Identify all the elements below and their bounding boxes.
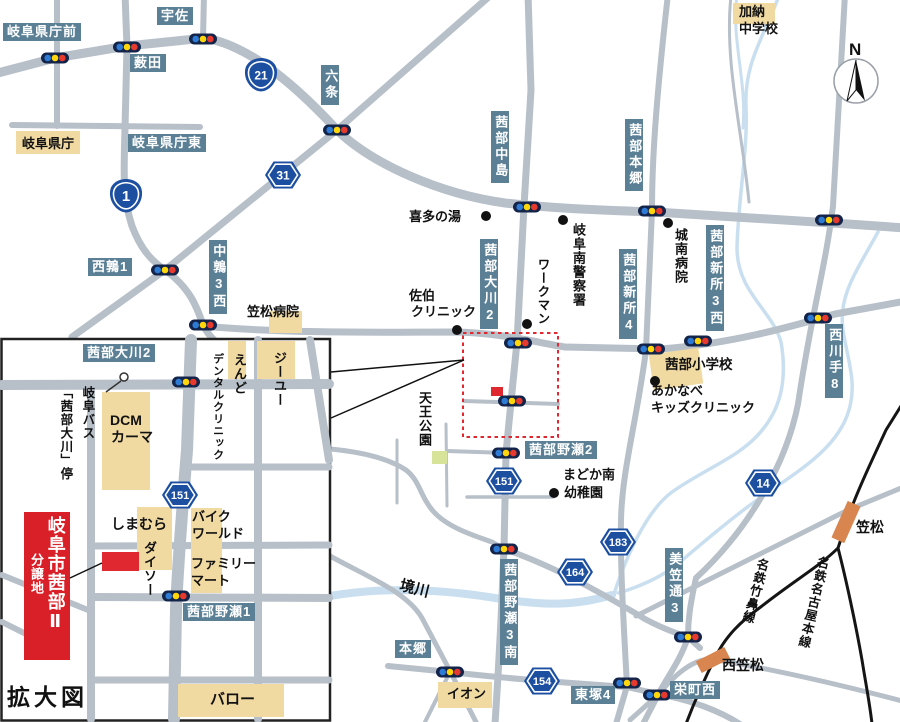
label-kencho-mae: 岐阜県庁前 <box>3 23 81 41</box>
svg-text:31: 31 <box>276 169 290 183</box>
inset-label-okawa2: 茜部大川2 <box>83 344 155 362</box>
traffic-light-icon <box>490 544 518 555</box>
traffic-light-icon <box>41 53 69 64</box>
label-kasamatsu-station: 笠松 <box>856 519 884 535</box>
traffic-light-icon <box>504 338 532 349</box>
inset-label-dcm-line2: カーマ <box>111 429 153 445</box>
inset-label-bus-col2: 「茜部大川」停 <box>58 386 72 481</box>
label-shogakko: 茜部小学校 <box>665 357 733 373</box>
site-parcel-inset <box>102 552 139 571</box>
inset-label-gu: ジーユー <box>271 351 286 407</box>
inset-road <box>91 597 329 598</box>
traffic-light-icon <box>323 125 351 136</box>
route-shield-151: 151 <box>486 468 522 495</box>
callout-line <box>331 360 464 372</box>
label-kencho-higashi: 岐阜県庁東 <box>128 134 206 152</box>
label-madoka-line2: 幼稚園 <box>564 486 603 501</box>
svg-text:14: 14 <box>756 477 770 491</box>
traffic-light-icon <box>189 34 217 45</box>
traffic-light-icon <box>643 690 671 701</box>
road <box>12 125 200 127</box>
route-shield-164: 164 <box>557 559 593 586</box>
label-naka-uzura3: 中鶉3西 <box>209 240 227 314</box>
label-shinsho4: 茜部新所4 <box>619 249 637 339</box>
traffic-light-icon <box>436 667 464 678</box>
compass-icon <box>834 59 878 103</box>
svg-text:183: 183 <box>609 537 627 549</box>
traffic-light-icon <box>674 632 702 643</box>
label-kencho: 岐阜県庁 <box>16 131 80 154</box>
label-noze3-minami: 茜部野瀬3南 <box>500 559 518 665</box>
label-nishi-kasamatsu-station: 西笠松 <box>722 657 764 673</box>
label-yabuta: 薮田 <box>130 54 166 72</box>
traffic-light-icon <box>113 42 141 53</box>
inset-label-noze1: 茜部野瀬1 <box>183 603 255 621</box>
label-jonan: 城南病院 <box>672 228 687 284</box>
inset-label-endo: えんど <box>231 353 246 395</box>
svg-text:151: 151 <box>495 476 513 488</box>
inset-label-dcm-line1: DCM <box>110 412 142 428</box>
label-saeki-line2: クリニック <box>411 305 476 320</box>
svg-text:154: 154 <box>533 676 552 688</box>
label-shinsho3-nishi: 茜部新所3西 <box>706 225 724 331</box>
label-kano-line2: 中学校 <box>739 22 778 37</box>
label-akabe-hongo: 茜部本郷 <box>625 119 643 191</box>
svg-text:1: 1 <box>122 188 130 205</box>
label-kano-line1: 加納 <box>739 5 765 20</box>
callout-line <box>331 360 464 418</box>
road <box>203 0 204 39</box>
label-usa: 宇佐 <box>157 7 193 25</box>
traffic-light-icon <box>638 206 666 217</box>
label-saeki-line1: 佐伯 <box>409 289 435 304</box>
inset-label-famima-line2: マート <box>191 574 230 589</box>
label-rokujo: 六条 <box>321 65 339 105</box>
railway-nagoya-honsen <box>838 398 900 722</box>
inset-label-shimamura: しまむら <box>111 516 167 532</box>
poi-dot <box>522 319 532 329</box>
label-police: 岐阜南警察署 <box>570 223 585 307</box>
label-madoka-line1: まどか南 <box>563 468 615 483</box>
traffic-light-icon <box>172 377 200 388</box>
route-shield-154: 154 <box>524 668 560 695</box>
label-sakaemachi-nishi: 栄町西 <box>670 681 720 699</box>
label-noze2: 茜部野瀬2 <box>525 441 597 459</box>
road <box>446 424 447 506</box>
label-nishikawate8: 西川手8 <box>825 324 843 398</box>
inset-label-dental: デンタルクリニック <box>211 353 224 461</box>
inset-label-bus-col1: 岐阜バス <box>80 386 94 440</box>
label-kitanoyu: 喜多の湯 <box>409 210 461 225</box>
label-okawa2: 茜部大川2 <box>480 239 498 329</box>
label-akanabe-line2: キッズクリニック <box>651 401 755 416</box>
inset-label-famima-line1: ファミリー <box>191 557 256 572</box>
traffic-light-icon <box>498 396 526 407</box>
poi-dot <box>558 215 568 225</box>
river-sakaigawa <box>330 590 612 604</box>
inset-label-valor: バロー <box>210 691 255 708</box>
label-tenno: 天王公園 <box>416 391 431 447</box>
traffic-light-icon <box>804 313 832 324</box>
label-hongo: 本郷 <box>395 640 431 658</box>
poi-dot <box>663 218 673 228</box>
inset-banner-subtitle: 分譲地 <box>28 553 43 595</box>
label-misadori3: 美笠通3 <box>665 548 683 622</box>
inset-label-bike-line2: ワールド <box>192 527 244 542</box>
traffic-light-icon <box>684 336 712 347</box>
traffic-light-icon <box>637 344 665 355</box>
route-shield-1: 1 <box>110 179 142 212</box>
svg-text:151: 151 <box>171 490 189 502</box>
label-nakajima: 茜部中島 <box>491 111 509 183</box>
label-akanabe-line1: あかなべ <box>651 384 703 399</box>
traffic-light-icon <box>492 448 520 459</box>
route-shield-21: 21 <box>245 58 277 91</box>
poi-dot <box>481 211 491 221</box>
traffic-light-icon <box>189 320 217 331</box>
park-square <box>432 451 447 464</box>
label-workman: ワークマン <box>535 258 549 326</box>
traffic-light-icon <box>162 591 190 602</box>
inset-title: 拡大図 <box>7 684 88 710</box>
inset-banner-title: 岐阜市茜部Ⅱ <box>45 516 66 633</box>
svg-text:164: 164 <box>566 567 585 579</box>
label-nishi-uzura1: 西鶉1 <box>88 258 132 276</box>
label-ion: イオン <box>447 687 486 702</box>
compass-n-label: N <box>849 40 861 60</box>
inset-label-bike-line1: バイク <box>192 510 231 525</box>
map-canvas: 21 1 31 151 183 164 154 14 151 岐阜県庁前 宇佐 … <box>0 0 900 722</box>
traffic-light-icon <box>613 678 641 689</box>
svg-text:21: 21 <box>254 69 268 83</box>
poi-dot <box>452 325 462 335</box>
traffic-light-icon <box>815 215 843 226</box>
road <box>330 449 504 549</box>
site-parcel <box>491 387 503 396</box>
label-higashizuka4: 東塚4 <box>571 686 615 704</box>
traffic-light-icon <box>513 202 541 213</box>
poi-dot <box>549 488 559 498</box>
traffic-light-icon <box>151 265 179 276</box>
inset-label-daiso: ダイソー <box>141 541 156 597</box>
label-kasamatsu-hospital: 笠松病院 <box>247 305 299 320</box>
